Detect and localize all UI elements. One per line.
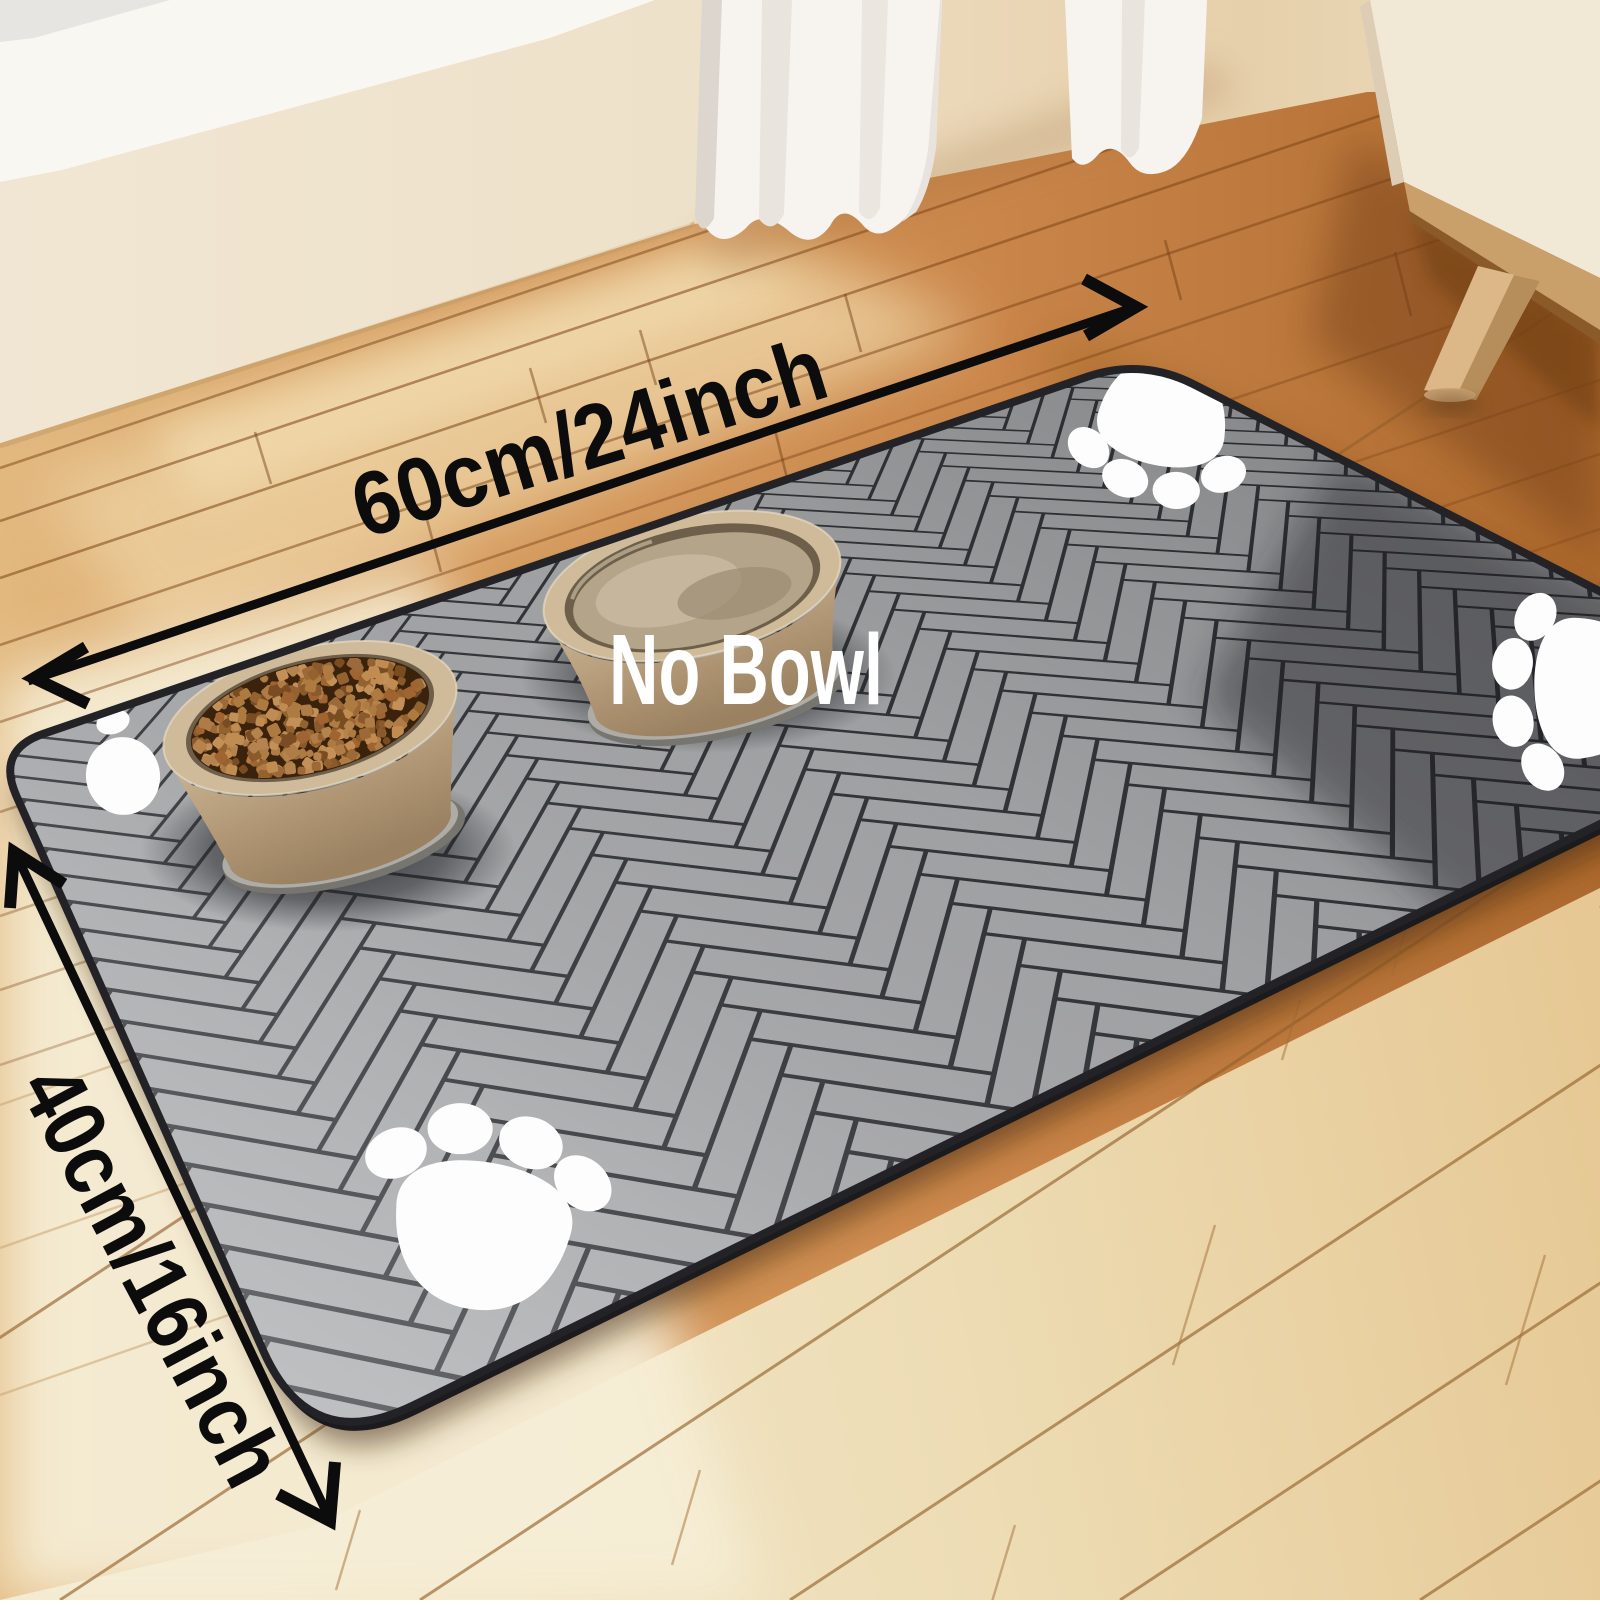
svg-text:No Bowl: No Bowl [609,614,883,726]
